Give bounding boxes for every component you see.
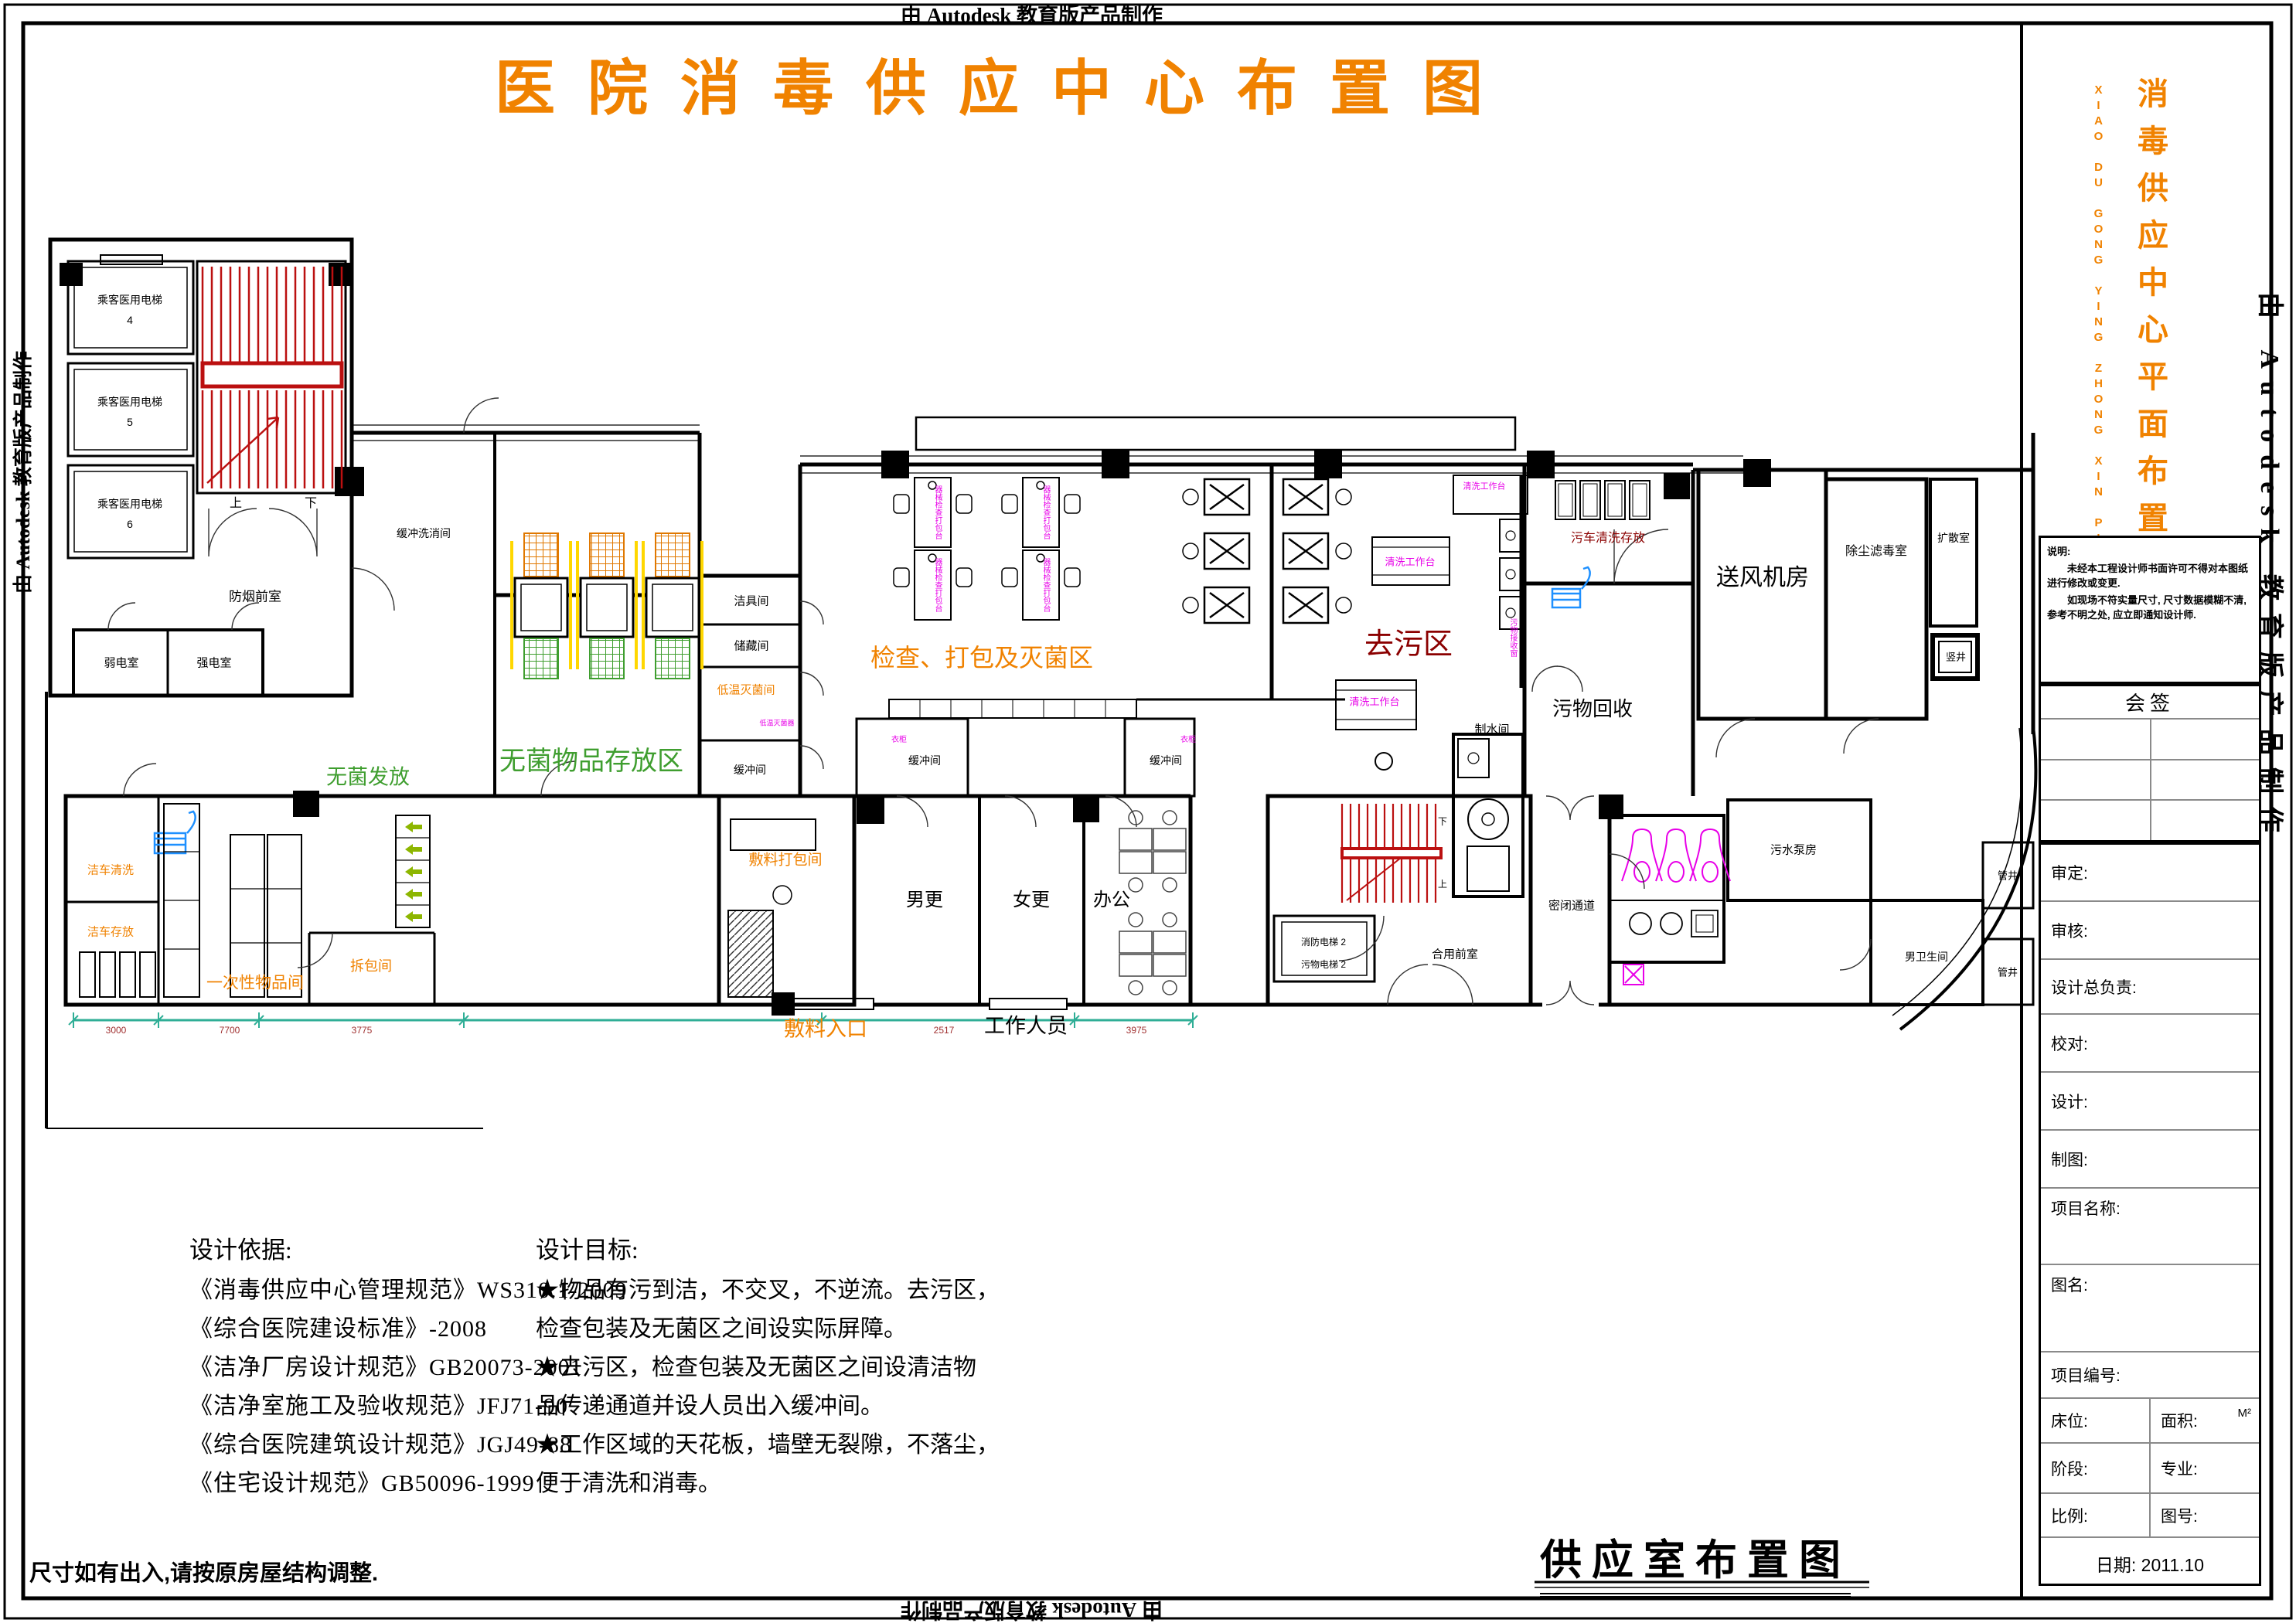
titleblock-row: 项目编号: — [2041, 1351, 2259, 1397]
room-smoke-vestibule: 防烟前室 — [229, 590, 281, 604]
titleblock-huiqian: 会签 — [2039, 684, 2261, 842]
room-storage: 储藏间 — [734, 641, 768, 652]
washer-machines — [1183, 479, 1351, 623]
washroom-sinks — [1630, 910, 1718, 937]
stair2-down-label: 下 — [1438, 817, 1447, 826]
titleblock-field: 面积:M² — [2149, 1399, 2259, 1442]
titleblock-row: 项目名称: — [2041, 1187, 2259, 1264]
design-goal-line: 便于清洗和消毒。 — [536, 1465, 1000, 1503]
design-goal-line: ★工作区域的天花板，墙壁无裂隙，不落尘， — [536, 1426, 1000, 1465]
dim-3975: 3975 — [1126, 1026, 1147, 1035]
equip-low-temp-sterilizer: 低温灭菌器 — [759, 720, 794, 727]
area-unit: M² — [2238, 1399, 2252, 1420]
drawing-title: 供应室布置图 — [1540, 1526, 1851, 1597]
design-goals: 设计目标: ★物品有污到洁，不交叉，不逆流。去污区，检查包装及无菌区之间设实际屏… — [536, 1230, 1000, 1503]
huiqian-title: 会签 — [2041, 686, 2259, 718]
side-title: 消毒供应中心平面布置图 — [2127, 77, 2172, 596]
room-dressing-pack: 敷料打包间 — [748, 853, 822, 868]
room-waste-recycle: 污物回收 — [1552, 699, 1633, 719]
design-goals-list: ★物品有污到洁，不交叉，不逆流。去污区，检查包装及无菌区之间设实际屏障。★去污区… — [536, 1271, 1000, 1503]
room-men-toilet: 男卫生间 — [1905, 951, 1948, 962]
decon-equipment — [1336, 475, 1528, 891]
titleblock-field: 项目编号: — [2041, 1352, 2259, 1397]
room-buffer-2: 缓冲间 — [908, 755, 941, 766]
titleblock-notes: 说明: 未经本工程设计师书面许可不得对本图纸进行修改或变更.如现场不符实量尺寸,… — [2039, 536, 2261, 684]
titleblock-row: 审定: — [2041, 845, 2259, 900]
dressing-equipment — [728, 819, 816, 997]
stair2-up-label: 上 — [1438, 880, 1447, 889]
room-elevator-4-num: 4 — [127, 315, 133, 325]
room-sealed-corridor: 密闭通道 — [1548, 900, 1595, 912]
titleblock-field: 图名: — [2041, 1265, 2259, 1351]
room-men-change: 男更 — [906, 891, 943, 910]
titleblock-field: 设计总负责: — [2041, 960, 2259, 1013]
design-goals-title: 设计目标: — [536, 1230, 1000, 1265]
room-shared-vestibule: 合用前室 — [1432, 949, 1478, 961]
titleblock-field: 比例: — [2041, 1494, 2149, 1536]
room-elevator-5-num: 5 — [127, 417, 133, 427]
equip-wardrobe-2: 衣柜 — [1180, 737, 1196, 744]
titleblock-field: 审核: — [2041, 902, 2259, 958]
room-office: 办公 — [1093, 891, 1130, 910]
room-buffer-1: 缓冲间 — [734, 764, 766, 775]
room-clean-cart-store: 洁车存放 — [87, 927, 134, 938]
room-cleaning-tools: 洁具间 — [734, 596, 768, 607]
titleblock-row: 设计: — [2041, 1071, 2259, 1129]
packing-tables — [894, 478, 1080, 620]
titleblock-row: 图名: — [2041, 1264, 2259, 1351]
equip-waste-window: 污物接收窗 — [1508, 618, 1516, 657]
room-elevator-5: 乘客医用电梯 — [97, 396, 162, 407]
dim-3000: 3000 — [106, 1026, 127, 1035]
equip-pack-table-1: 器械检查打包台 — [933, 485, 941, 539]
equip-pack-table-4: 器械检查打包台 — [1041, 558, 1049, 612]
stairs — [203, 267, 1441, 903]
cad-drawing-page: 由 Autodesk 教育版产品制作 由 Autodesk 教育版产品制作 由 … — [0, 0, 2296, 1623]
dim-3775: 3775 — [352, 1026, 373, 1035]
titleblock-field: 床位: — [2041, 1399, 2149, 1442]
titleblock-field: 项目名称: — [2041, 1189, 2259, 1264]
equip-wash-bench-1: 清洗工作台 — [1463, 483, 1506, 492]
room-elevator-6: 乘客医用电梯 — [97, 498, 162, 509]
titleblock-row: 校对: — [2041, 1013, 2259, 1071]
titleblock-field: 专业: — [2149, 1444, 2259, 1492]
room-low-temp-sterilize: 低温灭菌间 — [717, 685, 775, 696]
titleblock-row: 制图: — [2041, 1129, 2259, 1187]
titleblock-field: 设计: — [2041, 1073, 2259, 1129]
area-decontamination: 去污区 — [1364, 630, 1453, 659]
room-dust-filter: 除尘滤毒室 — [1845, 546, 1907, 558]
area-sterile-issue: 无菌发放 — [326, 767, 410, 788]
titleblock-row: 审核: — [2041, 900, 2259, 958]
room-buffer-wash: 缓冲洗消间 — [397, 528, 451, 539]
pass-arrows — [405, 822, 422, 922]
room-water-making: 制水间 — [1474, 724, 1509, 736]
equip-pack-table-3: 器械检查打包台 — [1041, 485, 1049, 539]
titleblock-field: 审定: — [2041, 845, 2259, 900]
design-goal-line: ★物品有污到洁，不交叉，不逆流。去污区， — [536, 1271, 1000, 1310]
huiqian-grid — [2041, 718, 2259, 840]
room-disposables: 一次性物品间 — [206, 975, 304, 992]
room-sewage-pump: 污水泵房 — [1770, 845, 1817, 856]
room-dirty-cart: 污车清洗存放 — [1571, 532, 1645, 545]
room-clean-cart-wash: 洁车清洗 — [87, 865, 134, 876]
room-unpacking: 拆包间 — [350, 959, 392, 973]
label-staff-entrance: 工作人员 — [984, 1016, 1068, 1037]
titleblock-field: 校对: — [2041, 1015, 2259, 1071]
room-air-supply-fan: 送风机房 — [1716, 567, 1809, 590]
equip-wash-bench-2: 清洗工作台 — [1385, 557, 1435, 567]
notes-line: 未经本工程设计师书面许可不得对本图纸进行修改或变更. — [2047, 561, 2253, 591]
titleblock-row: 床位:面积:M² — [2041, 1397, 2259, 1442]
label-dressing-entrance: 敷料入口 — [784, 1019, 867, 1040]
stair-up-label: 上 — [230, 498, 242, 510]
titleblock-field: 阶段: — [2041, 1444, 2149, 1492]
titleblock-rows: 审定:审核:设计总负责:校对:设计:制图:项目名称:图名:项目编号:床位:面积:… — [2039, 842, 2261, 1586]
room-elevator-6-num: 6 — [127, 519, 133, 529]
design-goal-line: 品传递通道并设人员出入缓冲间。 — [536, 1387, 1000, 1426]
titleblock-field: 图号: — [2149, 1494, 2259, 1536]
equip-wardrobe-1: 衣柜 — [891, 737, 907, 744]
notes-body: 未经本工程设计师书面许可不得对本图纸进行修改或变更.如现场不符实量尺寸, 尺寸数… — [2047, 561, 2253, 623]
area-inspect-pack-sterilize: 检查、打包及灭菌区 — [870, 645, 1093, 670]
room-women-change: 女更 — [1013, 891, 1050, 910]
stair-down-label: 下 — [305, 498, 317, 510]
room-elevator-4: 乘客医用电梯 — [97, 294, 162, 305]
titleblock-field: 制图: — [2041, 1131, 2259, 1187]
autoclaves — [512, 533, 702, 679]
titleblock-row: 设计总负责: — [2041, 958, 2259, 1013]
titleblock-row: 日期: 2011.10 — [2041, 1536, 2259, 1588]
notes-line: 如现场不符实量尺寸, 尺寸数据模糊不清, 参考不明之处, 应立即通知设计师. — [2047, 593, 2253, 623]
room-weak-power: 弱电室 — [104, 658, 138, 669]
size-adjust-note: 尺寸如有出入,请按原房屋结构调整. — [29, 1555, 378, 1587]
titleblock-row: 比例:图号: — [2041, 1492, 2259, 1536]
titleblock-date: 日期: 2011.10 — [2041, 1538, 2259, 1588]
room-buffer-3: 缓冲间 — [1150, 755, 1182, 766]
room-pipe-shaft-1: 管井 — [1998, 871, 2018, 881]
equip-wash-bench-3: 清洗工作台 — [1349, 697, 1399, 707]
room-fire-elevator: 消防电梯 2 — [1301, 937, 1346, 947]
room-waste-elevator: 污物电梯 2 — [1301, 960, 1346, 969]
dim-7700: 7700 — [220, 1026, 240, 1035]
design-goal-line: 检查包装及无菌区之间设实际屏障。 — [536, 1310, 1000, 1349]
area-sterile-storage: 无菌物品存放区 — [499, 748, 683, 774]
room-shaft: 竖井 — [1946, 652, 1966, 662]
design-goal-line: ★去污区，检查包装及无菌区之间设清洁物 — [536, 1349, 1000, 1387]
equip-pack-table-2: 器械检查打包台 — [933, 558, 941, 612]
notes-title: 说明: — [2047, 544, 2253, 560]
room-pipe-shaft-2: 管井 — [1998, 968, 2018, 978]
room-strong-power: 强电室 — [196, 658, 231, 669]
titleblock-row: 阶段:专业: — [2041, 1442, 2259, 1492]
dim-2517: 2517 — [934, 1026, 955, 1035]
room-diffusion: 扩散室 — [1937, 532, 1970, 543]
